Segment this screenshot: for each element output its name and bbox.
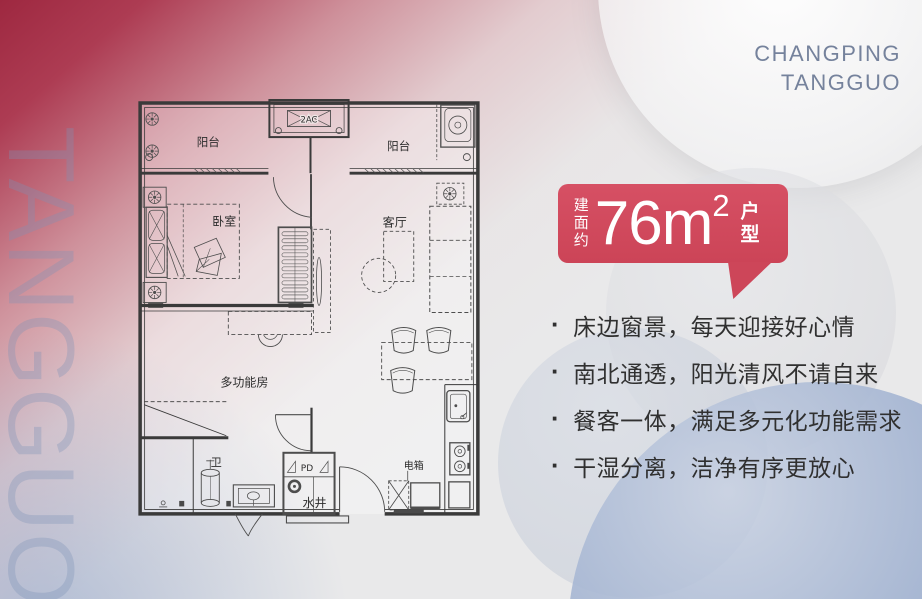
label-electric-box: 电箱	[404, 459, 424, 472]
plant-icon	[148, 286, 160, 298]
bullet-dot: ·	[551, 309, 560, 340]
bullet-dot: ·	[551, 450, 560, 481]
label-bedroom: 卧室	[212, 213, 236, 228]
highlight-item: · 干湿分离，洁净有序更放心	[551, 442, 902, 489]
floorplan: 阳台 阳台 2AC 卧室 客厅 多功能房 卫 PD 水井 电箱	[136, 99, 482, 545]
highlight-item: · 床边窗景，每天迎接好心情	[551, 301, 902, 348]
label-multi-room: 多功能房	[220, 375, 268, 390]
label-ac-unit: 2AC	[300, 116, 317, 126]
bullet-dot: ·	[551, 356, 560, 387]
label-balcony-right: 阳台	[387, 139, 410, 153]
brand-line2: TANGGUO	[754, 68, 901, 97]
highlight-text: 餐客一体，满足多元化功能需求	[573, 402, 902, 436]
badge-suffix: 户型	[737, 201, 758, 247]
bullet-dot: ·	[551, 403, 560, 434]
plant-icon	[146, 113, 158, 125]
badge-area-value: 76m	[595, 196, 713, 252]
highlight-text: 干湿分离，洁净有序更放心	[573, 449, 855, 483]
label-balcony-left: 阳台	[197, 135, 220, 149]
brand-logo: CHANGPING TANGGUO	[754, 39, 901, 97]
plant-icon	[146, 145, 158, 157]
watermark-text: TANGGUO	[0, 126, 88, 599]
badge-area-sup: 2	[712, 188, 729, 224]
plant-icon	[444, 187, 456, 199]
poster: TANGGUO CHANGPING TANGGUO	[0, 0, 922, 599]
label-pipe-duct: PD	[301, 464, 313, 474]
highlight-list: · 床边窗景，每天迎接好心情 · 南北通透，阳光清风不请自来 · 餐客一体，满足…	[551, 301, 902, 489]
highlight-item: · 南北通透，阳光清风不请自来	[551, 348, 902, 395]
plant-icon	[148, 191, 160, 203]
area-badge: 建面约 76m 2 户型	[558, 184, 788, 263]
label-living-room: 客厅	[383, 214, 407, 229]
highlight-text: 床边窗景，每天迎接好心情	[573, 308, 855, 342]
highlight-item: · 餐客一体，满足多元化功能需求	[551, 395, 902, 442]
highlight-text: 南北通透，阳光清风不请自来	[573, 355, 879, 389]
badge-prefix: 建面约	[572, 197, 588, 250]
brand-line1: CHANGPING	[754, 39, 901, 68]
label-water-well: 水井	[302, 496, 326, 510]
label-bathroom: 卫	[211, 456, 222, 469]
